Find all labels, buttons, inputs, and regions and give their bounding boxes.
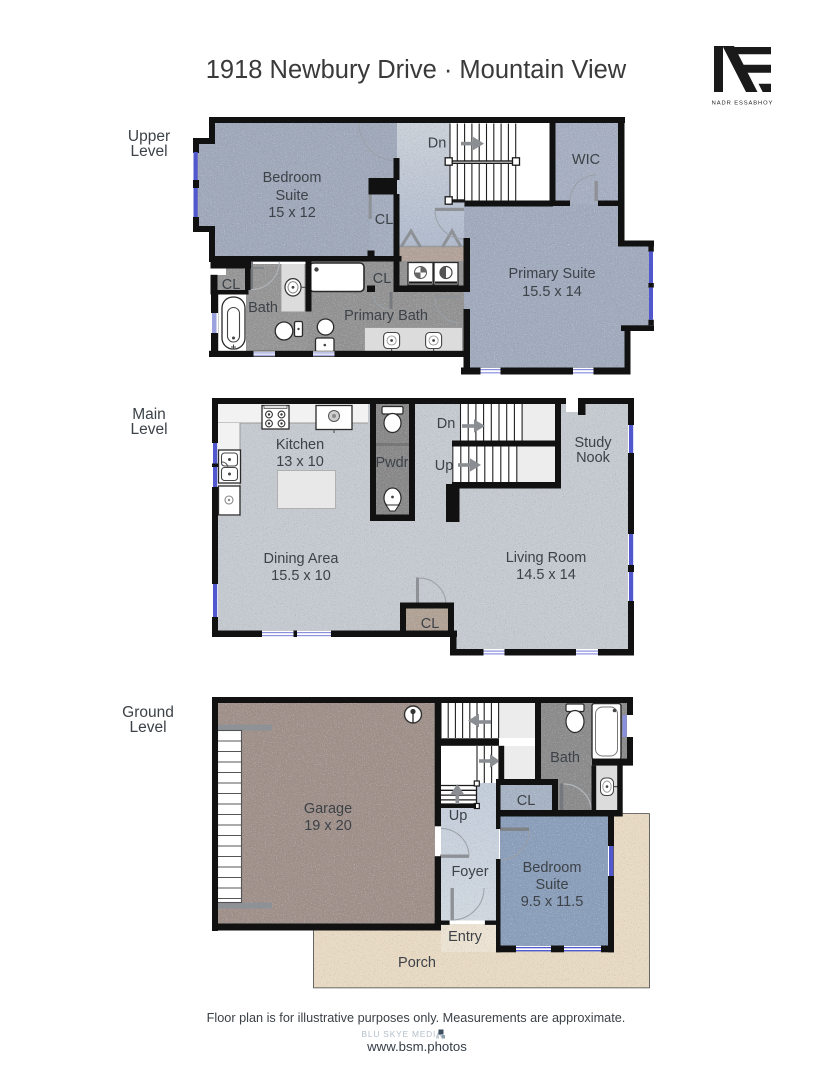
svg-text:Porch: Porch: [398, 955, 436, 971]
svg-text:Suite: Suite: [275, 188, 308, 204]
svg-text:Kitchen: Kitchen: [276, 437, 324, 453]
svg-text:Pwdr: Pwdr: [375, 455, 408, 471]
svg-text:Level: Level: [130, 421, 167, 438]
svg-text:Bedroom: Bedroom: [263, 170, 322, 186]
svg-text:Entry: Entry: [448, 929, 483, 945]
svg-text:Floor plan is for illustrative: Floor plan is for illustrative purposes …: [207, 1011, 626, 1025]
svg-text:CL: CL: [373, 271, 392, 287]
svg-text:1918 Newbury Drive · Mountain: 1918 Newbury Drive · Mountain View: [206, 56, 627, 84]
svg-text:Living Room: Living Room: [506, 550, 587, 566]
svg-text:Level: Level: [130, 143, 167, 160]
svg-text:Dn: Dn: [437, 416, 456, 432]
svg-text:15.5 x 14: 15.5 x 14: [522, 284, 582, 300]
svg-text:9.5 x 11.5: 9.5 x 11.5: [521, 894, 584, 910]
svg-text:15 x 12: 15 x 12: [268, 205, 316, 221]
svg-text:Primary Bath: Primary Bath: [344, 308, 428, 324]
svg-text:Dn: Dn: [428, 136, 447, 152]
svg-text:CL: CL: [421, 616, 440, 632]
svg-text:NADR ESSABHOY: NADR ESSABHOY: [712, 101, 774, 107]
svg-text:Bath: Bath: [248, 300, 278, 316]
svg-text:CL: CL: [375, 212, 394, 228]
svg-text:Suite: Suite: [535, 877, 568, 893]
svg-text:CL: CL: [517, 793, 536, 809]
svg-text:19 x 20: 19 x 20: [304, 818, 352, 834]
svg-text:Study: Study: [574, 435, 612, 451]
svg-text:13 x 10: 13 x 10: [276, 454, 324, 470]
svg-text:BLU SKYE MEDIA: BLU SKYE MEDIA: [361, 1029, 442, 1039]
svg-text:Up: Up: [435, 458, 454, 474]
svg-text:Bath: Bath: [550, 750, 580, 766]
svg-text:WIC: WIC: [572, 152, 600, 168]
svg-text:Bedroom: Bedroom: [523, 860, 582, 876]
svg-text:15.5 x 10: 15.5 x 10: [271, 568, 331, 584]
svg-text:www.bsm.photos: www.bsm.photos: [366, 1039, 467, 1054]
svg-text:14.5 x 14: 14.5 x 14: [516, 567, 576, 583]
svg-text:Dining Area: Dining Area: [264, 551, 340, 567]
svg-text:Garage: Garage: [304, 801, 352, 817]
svg-text:CL: CL: [222, 277, 241, 293]
svg-text:Level: Level: [129, 719, 166, 736]
svg-text:Primary Suite: Primary Suite: [508, 266, 595, 282]
svg-text:Nook: Nook: [576, 450, 611, 466]
svg-text:Foyer: Foyer: [451, 864, 488, 880]
svg-text:Up: Up: [449, 808, 468, 824]
